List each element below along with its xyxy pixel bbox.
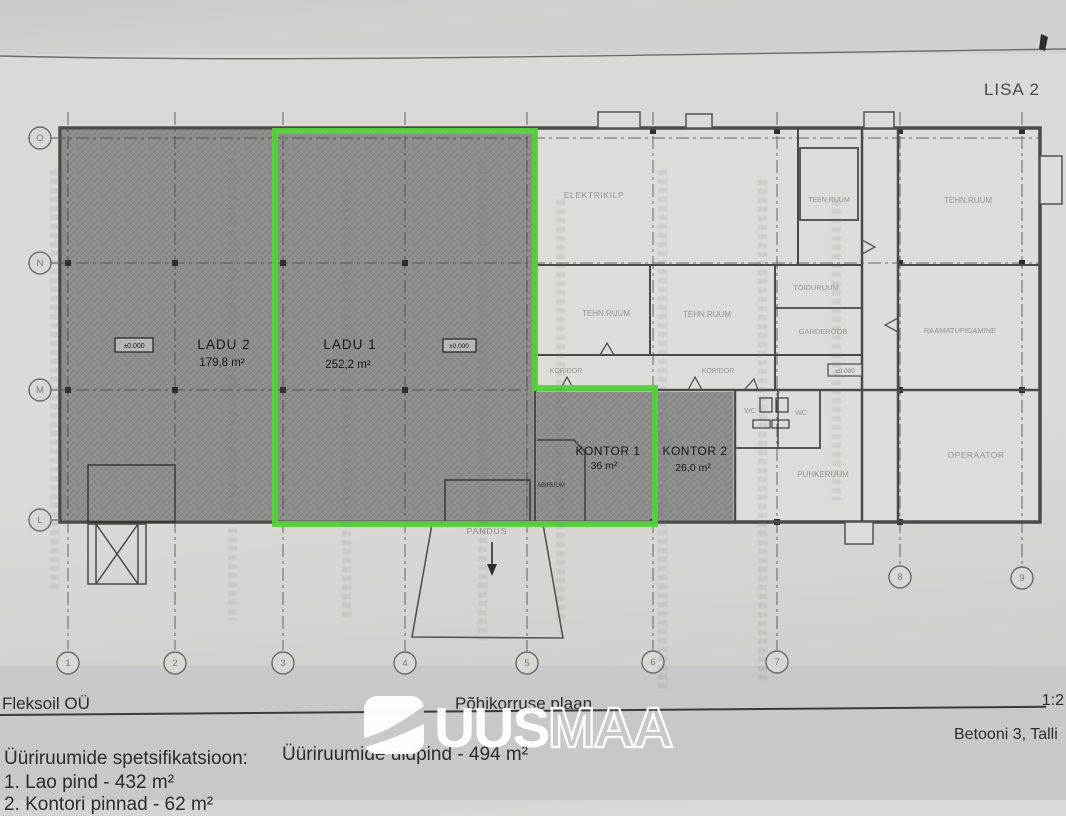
garderoob-label: GARDEROOB xyxy=(799,327,848,336)
kontor1-name: KONTOR 1 xyxy=(575,444,640,458)
elevation-value-2: ±0.000 xyxy=(449,343,469,350)
ramp-outline xyxy=(412,524,563,638)
ladu2-area: 179,8 m² xyxy=(199,357,245,369)
koridor-b-label: KORIDOR xyxy=(702,368,735,375)
ladu2-name: LADU 2 xyxy=(197,337,250,352)
abiruum-label: ABIRUUM xyxy=(537,483,565,489)
col-label-9: 9 xyxy=(1019,573,1024,584)
floor-plan-canvas: PANDUS ±0.000 ±0.000 ±0.000 LADU 2 179,8… xyxy=(0,0,1066,800)
logo-text-bold: UUS xyxy=(434,696,548,758)
col-label-2: 2 xyxy=(172,658,177,669)
spec-item-warehouse: 1. Lao pind - 432 m² xyxy=(4,772,174,794)
col-label-4: 4 xyxy=(402,658,407,669)
ladu2-fill xyxy=(62,130,273,520)
property-address: Betooni 3, Talli xyxy=(954,726,1058,744)
operaator-label: OPERAATOR xyxy=(947,450,1004,460)
ramp-arrow-head xyxy=(487,564,497,576)
row-label-N: N xyxy=(37,258,44,269)
elektrikilp-label: ELEKTRIKILP xyxy=(564,190,624,200)
company-name: Fleksoil OÜ xyxy=(2,694,90,714)
spec-heading: Üüriruumide spetsifikatsioon: xyxy=(4,748,248,770)
col-label-3: 3 xyxy=(280,658,285,669)
top-shadow-band xyxy=(0,0,1066,54)
spec-item-office: 2. Kontori pinnad - 62 m² xyxy=(4,794,213,816)
puhkeruum-label: PUHKERUUM xyxy=(797,470,849,479)
kontor1-area: 36 m² xyxy=(591,460,618,472)
koridor-a-label: KORIDOR xyxy=(550,368,583,375)
tehn-ruum-c-label: TEHN.RUUM xyxy=(944,196,992,205)
annex-gate xyxy=(88,524,146,584)
ramp: PANDUS xyxy=(412,524,563,638)
col-label-6: 6 xyxy=(650,657,655,668)
teen-ruum-label: TEEN.RUUM xyxy=(808,197,850,204)
toiduruum-label: TOIDURUUM xyxy=(793,283,839,292)
col-label-7: 7 xyxy=(774,657,779,668)
ladu1-name: LADU 1 xyxy=(323,337,376,352)
tehn-ruum-a-label: TEHN.RUUM xyxy=(582,309,630,318)
logo-text-outline: MAA xyxy=(548,696,673,758)
kontor2-name: KONTOR 2 xyxy=(662,444,727,458)
uusmaa-logo: UUS MAA xyxy=(360,692,708,763)
pandus-label: PANDUS xyxy=(467,526,508,536)
row-label-M: M xyxy=(36,385,44,396)
elevation-value-1: ±0.000 xyxy=(123,343,144,350)
ladu1-area: 252,2 m² xyxy=(325,359,371,371)
col-label-8: 8 xyxy=(897,572,902,583)
attachment-label: LISA 2 xyxy=(984,80,1040,100)
raamatupidamine-label: RAAMATUPIDAMINE xyxy=(924,326,996,335)
uusmaa-logo-graphic: UUS MAA xyxy=(360,692,708,758)
wc-a-label: WC xyxy=(744,408,756,415)
drawing-scale: 1:2 xyxy=(1042,692,1064,710)
elevation-value-3: ±0.000 xyxy=(835,368,855,375)
wc-b-label: WC xyxy=(795,410,807,417)
row-label-L: L xyxy=(37,515,42,526)
col-label-5: 5 xyxy=(524,658,529,669)
row-label-O: O xyxy=(36,133,43,144)
col-label-1: 1 xyxy=(65,658,70,669)
tehn-ruum-b-label: TEHN.RUUM xyxy=(683,310,731,319)
kontor2-area: 26,0 m² xyxy=(675,462,711,474)
